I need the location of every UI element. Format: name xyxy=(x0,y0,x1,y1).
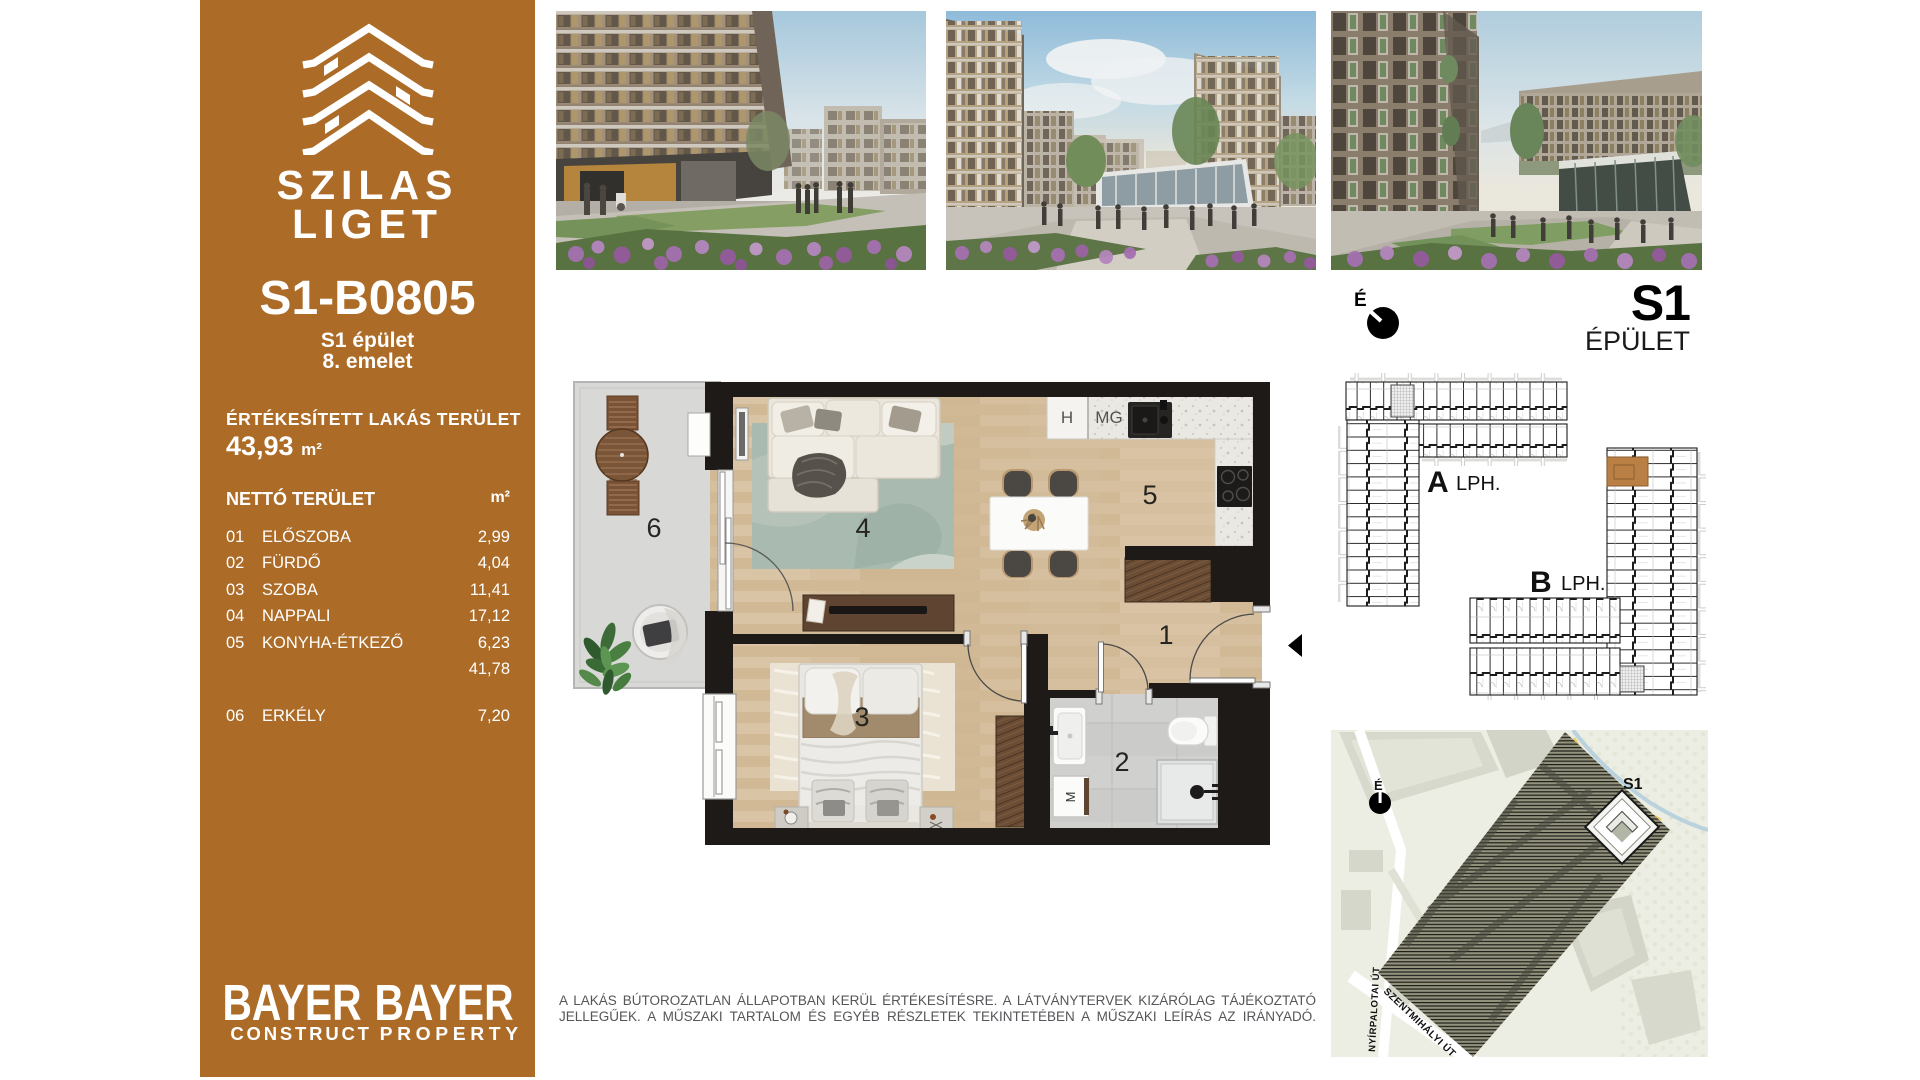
svg-text:A: A xyxy=(1427,466,1449,499)
svg-text:4: 4 xyxy=(855,513,870,543)
svg-text:LPH.: LPH. xyxy=(1561,573,1605,595)
svg-text:S1: S1 xyxy=(1623,776,1643,793)
svg-text:6: 6 xyxy=(646,513,661,543)
svg-text:MG: MG xyxy=(1095,408,1122,427)
svg-text:5: 5 xyxy=(1142,480,1157,510)
svg-text:2: 2 xyxy=(1114,747,1129,777)
svg-text:B: B xyxy=(1530,566,1552,599)
svg-text:1: 1 xyxy=(1158,620,1173,650)
svg-text:3: 3 xyxy=(854,702,869,732)
svg-text:LPH.: LPH. xyxy=(1456,473,1500,495)
svg-text:M: M xyxy=(1063,792,1078,803)
svg-text:H: H xyxy=(1061,408,1073,427)
svg-text:É: É xyxy=(1374,778,1383,793)
